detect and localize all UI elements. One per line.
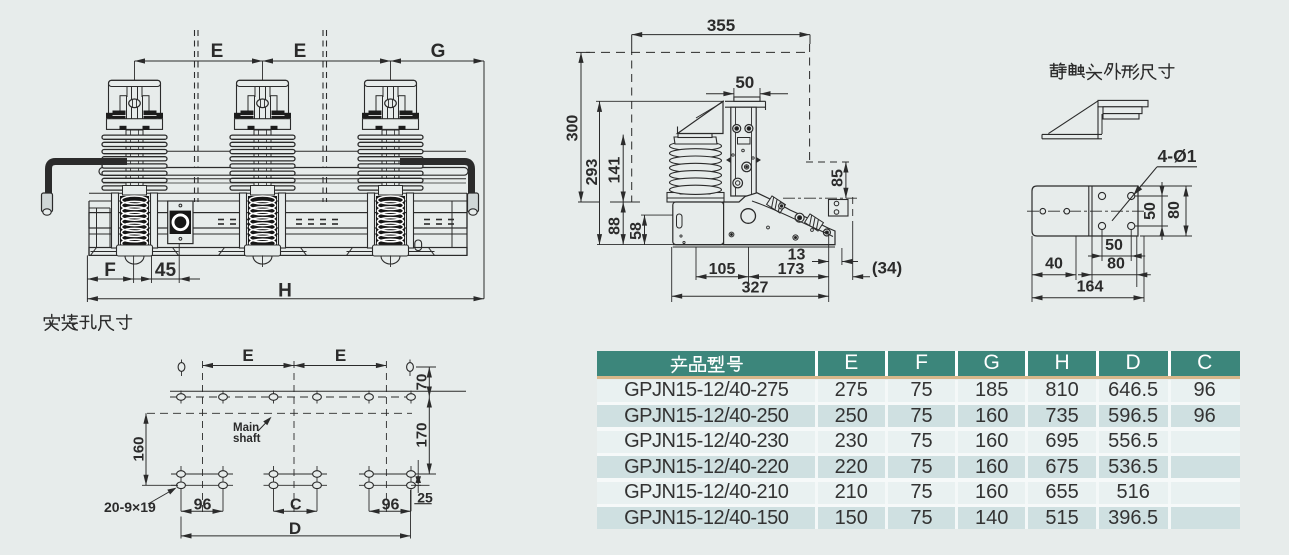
svg-text:20-9×19: 20-9×19 xyxy=(104,499,156,515)
svg-text:300: 300 xyxy=(565,115,582,142)
svg-text:E: E xyxy=(294,41,307,62)
svg-text:E: E xyxy=(242,346,253,365)
svg-text:70: 70 xyxy=(414,374,431,391)
svg-text:4-Ø1: 4-Ø1 xyxy=(1158,146,1197,166)
svg-text:50: 50 xyxy=(735,73,754,92)
svg-text:355: 355 xyxy=(707,16,735,35)
svg-text:25: 25 xyxy=(417,490,433,506)
svg-text:shaft: shaft xyxy=(233,433,261,445)
svg-text:85: 85 xyxy=(830,169,847,187)
svg-text:96: 96 xyxy=(382,497,400,514)
svg-text:40: 40 xyxy=(1045,256,1063,273)
svg-text:50: 50 xyxy=(1142,202,1159,220)
svg-text:45: 45 xyxy=(155,260,177,281)
svg-text:50: 50 xyxy=(1105,237,1123,254)
svg-text:170: 170 xyxy=(414,422,431,447)
svg-text:H: H xyxy=(278,281,292,302)
svg-text:(34): (34) xyxy=(872,259,902,278)
svg-text:80: 80 xyxy=(1166,201,1183,219)
svg-text:58: 58 xyxy=(628,222,645,240)
svg-text:164: 164 xyxy=(1077,279,1104,296)
svg-text:E: E xyxy=(335,346,346,365)
svg-text:E: E xyxy=(211,41,224,62)
svg-text:D: D xyxy=(289,519,301,538)
svg-text:160: 160 xyxy=(131,436,148,461)
svg-text:80: 80 xyxy=(1107,256,1125,273)
svg-text:327: 327 xyxy=(742,280,769,297)
svg-text:141: 141 xyxy=(607,157,624,184)
svg-text:173: 173 xyxy=(778,261,805,278)
svg-text:293: 293 xyxy=(584,159,601,186)
svg-text:F: F xyxy=(104,260,116,281)
svg-text:C: C xyxy=(290,497,302,514)
svg-text:88: 88 xyxy=(607,217,624,235)
svg-text:105: 105 xyxy=(709,261,736,278)
svg-text:96: 96 xyxy=(194,497,212,514)
svg-text:G: G xyxy=(431,41,446,62)
